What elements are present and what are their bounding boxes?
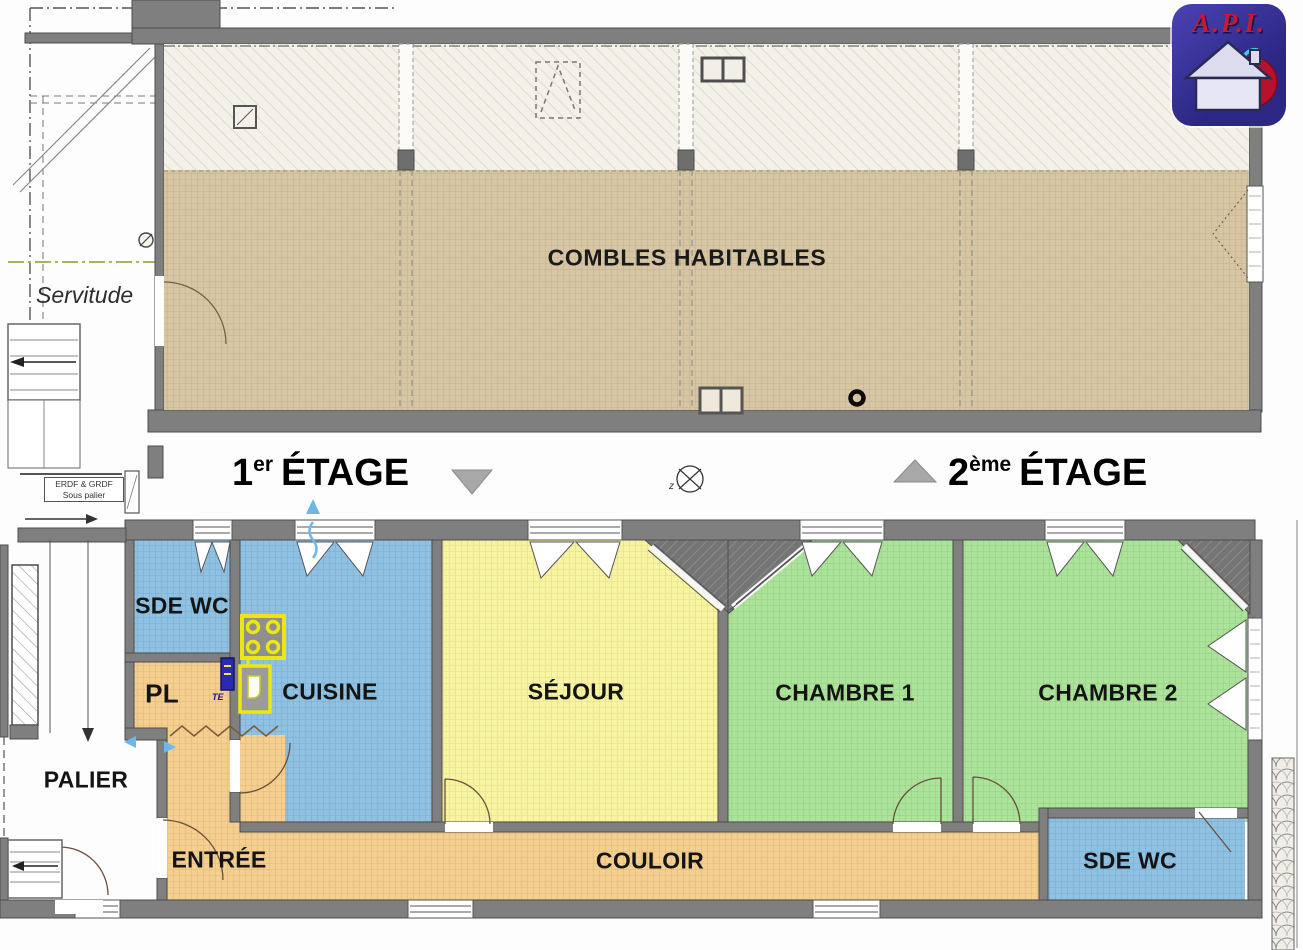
room-label-sde-wc-bottom: SDE WC [1083, 848, 1177, 875]
roof-tile-strip [1272, 758, 1294, 950]
logo-text: A.P.I. [1172, 8, 1286, 39]
combles-door-opening [155, 276, 164, 346]
te-panel-label: TE [212, 692, 224, 702]
room-label-couloir: COULOIR [596, 848, 704, 875]
room-label-palier: PALIER [44, 767, 128, 794]
pipe-symbol-icon [139, 233, 153, 247]
level-word: ÉTAGE [281, 452, 409, 494]
roof-window-icon [702, 58, 744, 81]
erdf-grdf-note: ERDF & GRDF Sous palier [44, 477, 124, 502]
direction-arrow [86, 514, 98, 524]
first-floor-rooms [134, 540, 1250, 900]
palier-door-arc [60, 847, 108, 895]
room-label-cuisine: CUISINE [282, 679, 377, 706]
erdf-line1: ERDF & GRDF [45, 479, 123, 490]
level-number: 2 [948, 452, 969, 494]
level-suffix: er [253, 453, 273, 476]
room-label-combles: COMBLES HABITABLES [548, 245, 827, 272]
room-entree [167, 735, 285, 900]
upper-stairs [8, 324, 80, 468]
combles-habitables-area [164, 170, 1249, 410]
stair-direction-arrow [82, 728, 94, 742]
compass-z-label: z [669, 481, 674, 492]
room-label-sde-wc-top: SDE WC [135, 593, 229, 620]
level-down-triangle-icon [452, 470, 492, 494]
palier-stairs [8, 540, 94, 898]
electrical-panel-icon [221, 658, 234, 690]
room-label-pl: PL [145, 679, 179, 710]
room-label-chambre2: CHAMBRE 2 [1038, 680, 1177, 707]
stove-icon [242, 616, 284, 658]
floor-plan-page: COMBLES HABITABLES Servitude 1erÉTAGE 2è… [0, 0, 1303, 950]
room-label-sejour: SÉJOUR [528, 679, 624, 706]
erdf-line2: Sous palier [45, 490, 123, 501]
chimney-symbol-icon [234, 106, 256, 128]
level-label-1er-etage: 1erÉTAGE [232, 452, 409, 495]
level-up-triangle-icon [894, 460, 936, 482]
level-number: 1 [232, 452, 253, 494]
level-word: ÉTAGE [1019, 452, 1147, 494]
room-label-entree: ENTRÉE [171, 847, 266, 874]
level-suffix: ème [969, 453, 1011, 476]
sink-icon [240, 666, 270, 712]
level-label-2eme-etage: 2èmeÉTAGE [948, 452, 1147, 495]
north-compass-icon [677, 466, 703, 492]
api-agency-logo: A.P.I. [1172, 4, 1286, 126]
room-label-chambre1: CHAMBRE 1 [775, 680, 914, 707]
house-icon [1186, 42, 1270, 110]
servitude-label: Servitude [36, 282, 133, 309]
floor-window-icon [700, 388, 742, 413]
